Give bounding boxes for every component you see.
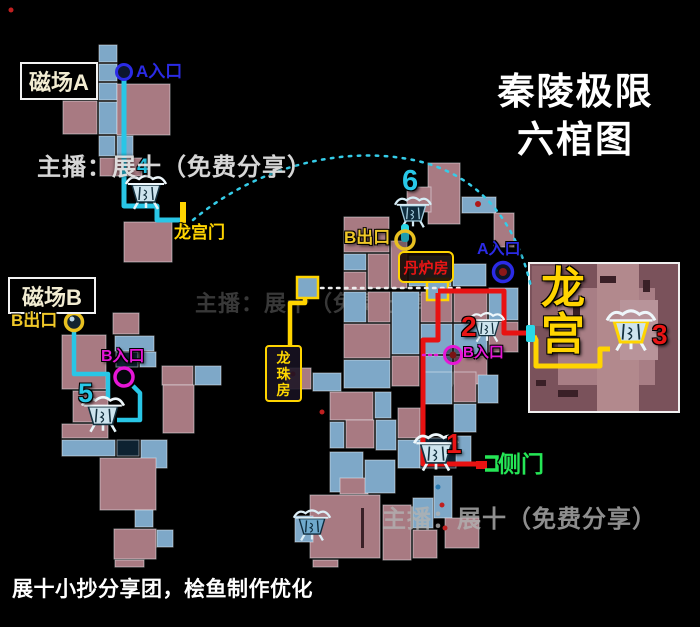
a-entrance-a-circle xyxy=(117,65,132,80)
b-exit-main-circle xyxy=(396,231,414,249)
map-tile xyxy=(115,560,144,567)
map-tile xyxy=(135,510,153,527)
map-tile xyxy=(99,45,117,62)
map-tile xyxy=(330,422,344,448)
credit-text: 展十小抄分享团，桧鱼制作优化 xyxy=(12,573,313,603)
title-line1: 秦陵极限 xyxy=(498,71,654,112)
map-tile xyxy=(99,83,117,100)
map-tile xyxy=(62,424,108,438)
palace-block xyxy=(361,508,364,548)
map-tile xyxy=(346,420,374,448)
coffin2-exit-tick xyxy=(526,325,535,342)
num-6: 6 xyxy=(402,166,418,196)
map-tile xyxy=(344,254,366,270)
cemen-label: 侧门 xyxy=(498,452,544,476)
map-tile xyxy=(478,375,498,403)
a-entrance-main-label: A入口 xyxy=(477,242,521,259)
corner-dot xyxy=(9,8,14,13)
b-entrance-b-label: B入口 xyxy=(101,349,145,366)
cemen-door-red xyxy=(476,461,487,469)
b-entrance-main-circle-dot xyxy=(450,352,457,359)
route-yellow-longzhufang xyxy=(290,297,305,346)
map-tile xyxy=(344,324,390,358)
danlufang-room-box: 丹炉房 xyxy=(398,251,454,283)
map-tile xyxy=(162,366,193,385)
map-tile xyxy=(413,530,437,558)
watermark-bottom: 主播：展十（免费分享） xyxy=(382,499,657,534)
num-2: 2 xyxy=(461,312,477,341)
map-tile xyxy=(398,408,420,438)
b-exit-b-label: B出口 xyxy=(11,312,57,330)
b-exit-b-circle-dot xyxy=(70,317,75,322)
map-tile xyxy=(428,163,460,224)
map-tile xyxy=(392,292,419,354)
b-exit-main-label: B出口 xyxy=(344,229,390,247)
route-b-entrance-to-coffin5 xyxy=(117,386,140,420)
map-tile xyxy=(344,360,390,388)
palace-label: 龙 宫 xyxy=(541,266,585,358)
junction-square xyxy=(297,277,318,298)
map-tile xyxy=(113,313,139,334)
map-guide-image: 主播：展十（免费分享） xyxy=(0,0,700,627)
b-entrance-b-circle xyxy=(115,368,133,386)
map-tile xyxy=(368,292,390,322)
map-tile xyxy=(376,420,396,450)
map-tile xyxy=(375,392,391,418)
map-tile xyxy=(99,102,117,134)
map-tile xyxy=(453,264,486,286)
map-tile xyxy=(392,356,419,386)
palace-block xyxy=(536,380,546,386)
map-tile xyxy=(422,372,452,404)
map-tile xyxy=(114,529,156,559)
longzhufang-room-box: 龙 珠 房 xyxy=(265,345,302,402)
palace-block xyxy=(600,276,616,283)
longgongmen-label: 龙宫门 xyxy=(174,224,225,242)
title-line2: 六棺图 xyxy=(517,119,634,160)
map-tile xyxy=(340,478,368,494)
map-tile xyxy=(63,101,97,134)
map-tile xyxy=(100,458,156,510)
map-tile xyxy=(368,254,389,288)
field-a-box: 磁场A xyxy=(20,62,98,100)
map-tile xyxy=(454,372,476,402)
field-b-box: 磁场B xyxy=(8,277,96,314)
red-dot-tile xyxy=(475,201,481,207)
map-tile xyxy=(99,64,117,81)
map-tile xyxy=(330,392,373,420)
map-tile xyxy=(117,440,139,456)
num-3: 3 xyxy=(652,320,668,349)
map-tile xyxy=(163,385,194,433)
watermark-top: 主播：展十（免费分享） xyxy=(37,147,312,182)
map-tile xyxy=(124,222,172,262)
palace-block xyxy=(643,280,650,292)
map-tile xyxy=(195,366,221,385)
map-tile xyxy=(313,373,341,391)
map-tile xyxy=(62,440,115,456)
palace-block xyxy=(558,390,578,397)
num-1: 1 xyxy=(446,429,462,458)
a-entrance-a-label: A入口 xyxy=(136,63,182,81)
b-exit-b-circle xyxy=(66,314,83,331)
num-5: 5 xyxy=(78,379,93,407)
b-entrance-main-label: B入口 xyxy=(463,345,504,361)
map-tile xyxy=(157,530,173,547)
map-tile xyxy=(365,460,395,493)
map-tile xyxy=(344,292,366,322)
page-title: 秦陵极限六棺图 xyxy=(448,68,700,164)
map-tile xyxy=(313,560,338,567)
blue-diamond xyxy=(436,485,441,490)
a-entrance-main-circle-dot xyxy=(499,268,507,276)
red-diamond-2 xyxy=(320,410,325,415)
